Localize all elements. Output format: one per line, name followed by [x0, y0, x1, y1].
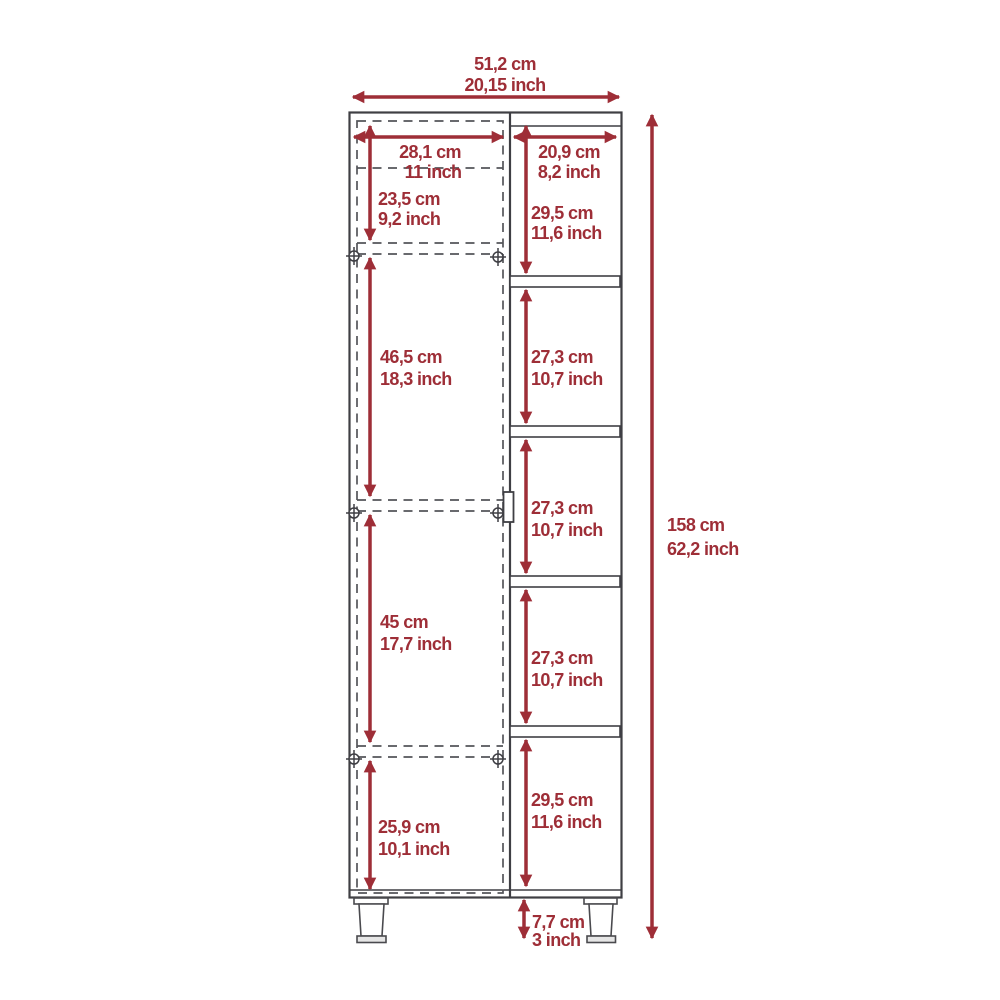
dim-door-width-inch: 11 inch: [405, 162, 462, 182]
dim-shelf-1-inch: 11,6 inch: [531, 223, 602, 243]
dim-shelf-column-width-cm: 20,9 cm: [538, 142, 600, 162]
dim-shelf-2-inch: 10,7 inch: [531, 369, 603, 389]
dim-door-section-top-cm: 23,5 cm: [378, 189, 440, 209]
shelf-edge-3: [510, 576, 620, 587]
dim-overall-width-inch: 20,15 inch: [464, 75, 545, 95]
dim-overall-height-cm: 158 cm: [667, 515, 724, 535]
dim-door-section-upper-inch: 18,3 inch: [380, 369, 452, 389]
dim-leg-height-cm: 7,7 cm: [532, 912, 584, 932]
dim-shelf-2-cm: 27,3 cm: [531, 347, 593, 367]
door-handle-icon: [504, 492, 514, 522]
dim-door-section-bottom-inch: 10,1 inch: [378, 839, 450, 859]
cabinet-dimension-diagram: 51,2 cm 20,15 inch 28,1 cm 11 inch 20,9 …: [0, 0, 1000, 1000]
dim-shelf-3-inch: 10,7 inch: [531, 520, 603, 540]
diagram-canvas: 51,2 cm 20,15 inch 28,1 cm 11 inch 20,9 …: [0, 0, 1000, 1000]
dim-shelf-4-inch: 10,7 inch: [531, 670, 603, 690]
dim-leg-height-inch: 3 inch: [532, 930, 580, 950]
dim-door-section-upper-cm: 46,5 cm: [380, 347, 442, 367]
shelf-edge-2: [510, 426, 620, 437]
dim-door-section-bottom-cm: 25,9 cm: [378, 817, 440, 837]
dim-overall-width-cm: 51,2 cm: [474, 54, 536, 74]
dim-door-width-cm: 28,1 cm: [399, 142, 461, 162]
shelf-edge-1: [510, 276, 620, 287]
dim-shelf-4-cm: 27,3 cm: [531, 648, 593, 668]
dim-shelf-column-width-inch: 8,2 inch: [538, 162, 600, 182]
dim-door-section-top-inch: 9,2 inch: [378, 209, 440, 229]
dim-door-section-lower-cm: 45 cm: [380, 612, 428, 632]
dim-shelf-1-cm: 29,5 cm: [531, 203, 593, 223]
dim-shelf-3-cm: 27,3 cm: [531, 498, 593, 518]
shelf-edge-4: [510, 726, 620, 737]
dim-overall-height-inch: 62,2 inch: [667, 539, 739, 559]
dim-door-section-lower-inch: 17,7 inch: [380, 634, 452, 654]
dim-shelf-5-cm: 29,5 cm: [531, 790, 593, 810]
dim-shelf-5-inch: 11,6 inch: [531, 812, 602, 832]
